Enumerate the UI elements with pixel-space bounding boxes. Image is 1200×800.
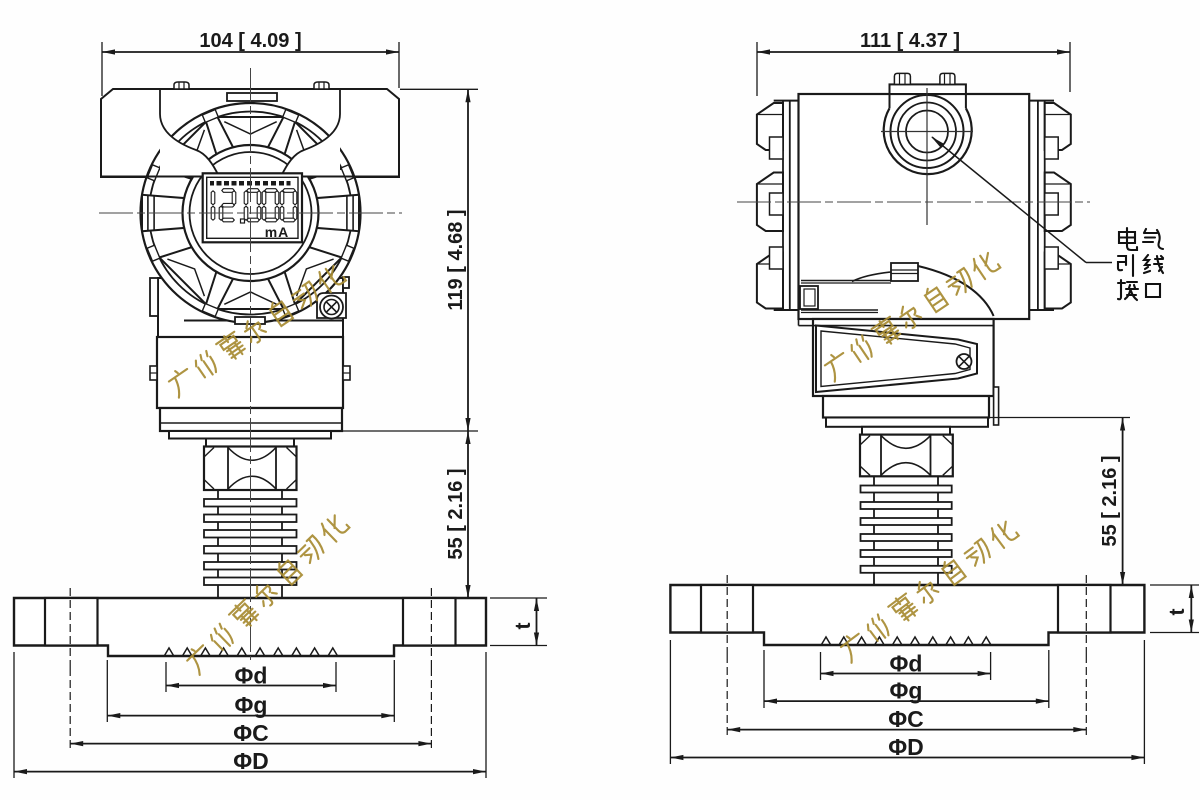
svg-text:ΦD: ΦD <box>888 734 924 760</box>
svg-text:55 [ 2.16 ]: 55 [ 2.16 ] <box>445 468 467 559</box>
svg-text:mA: mA <box>265 224 290 240</box>
svg-text:119 [ 4.68 ]: 119 [ 4.68 ] <box>445 209 467 310</box>
svg-text:55 [ 2.16 ]: 55 [ 2.16 ] <box>1099 455 1121 546</box>
svg-text:t: t <box>512 623 535 630</box>
svg-text:Φg: Φg <box>890 678 923 704</box>
svg-text:Φd: Φd <box>890 651 923 677</box>
svg-text:Φg: Φg <box>235 692 268 718</box>
svg-text:ΦC: ΦC <box>888 706 924 732</box>
svg-text:Φd: Φd <box>235 663 268 689</box>
svg-text:ΦC: ΦC <box>233 720 269 746</box>
svg-text:ΦD: ΦD <box>233 748 269 774</box>
svg-text:t: t <box>1166 609 1189 616</box>
svg-text:104 [ 4.09 ]: 104 [ 4.09 ] <box>199 30 301 52</box>
svg-text:111 [ 4.37 ]: 111 [ 4.37 ] <box>860 30 960 52</box>
